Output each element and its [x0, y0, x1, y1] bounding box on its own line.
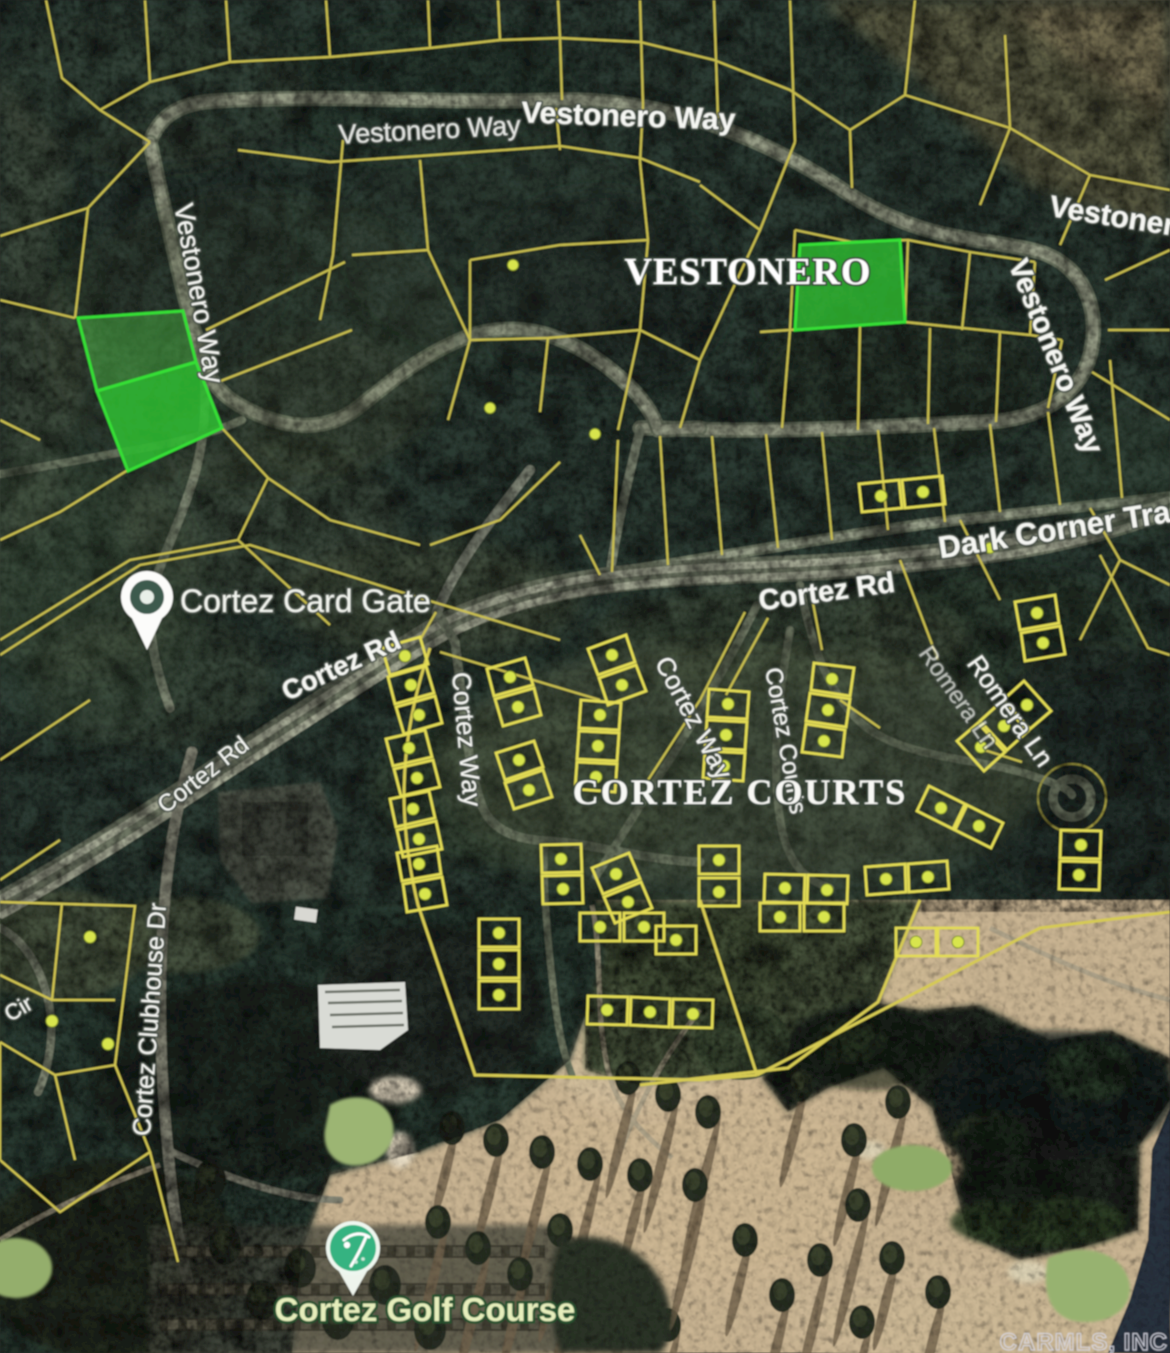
svg-text:VESTONERO: VESTONERO: [625, 251, 872, 293]
svg-text:CARMLS, INC: CARMLS, INC: [1000, 1329, 1168, 1353]
svg-text:Cortez Card Gate: Cortez Card Gate: [180, 583, 431, 619]
svg-text:CORTEZ COURTS: CORTEZ COURTS: [573, 772, 908, 812]
svg-text:Cortez Golf Course: Cortez Golf Course: [275, 1291, 576, 1328]
